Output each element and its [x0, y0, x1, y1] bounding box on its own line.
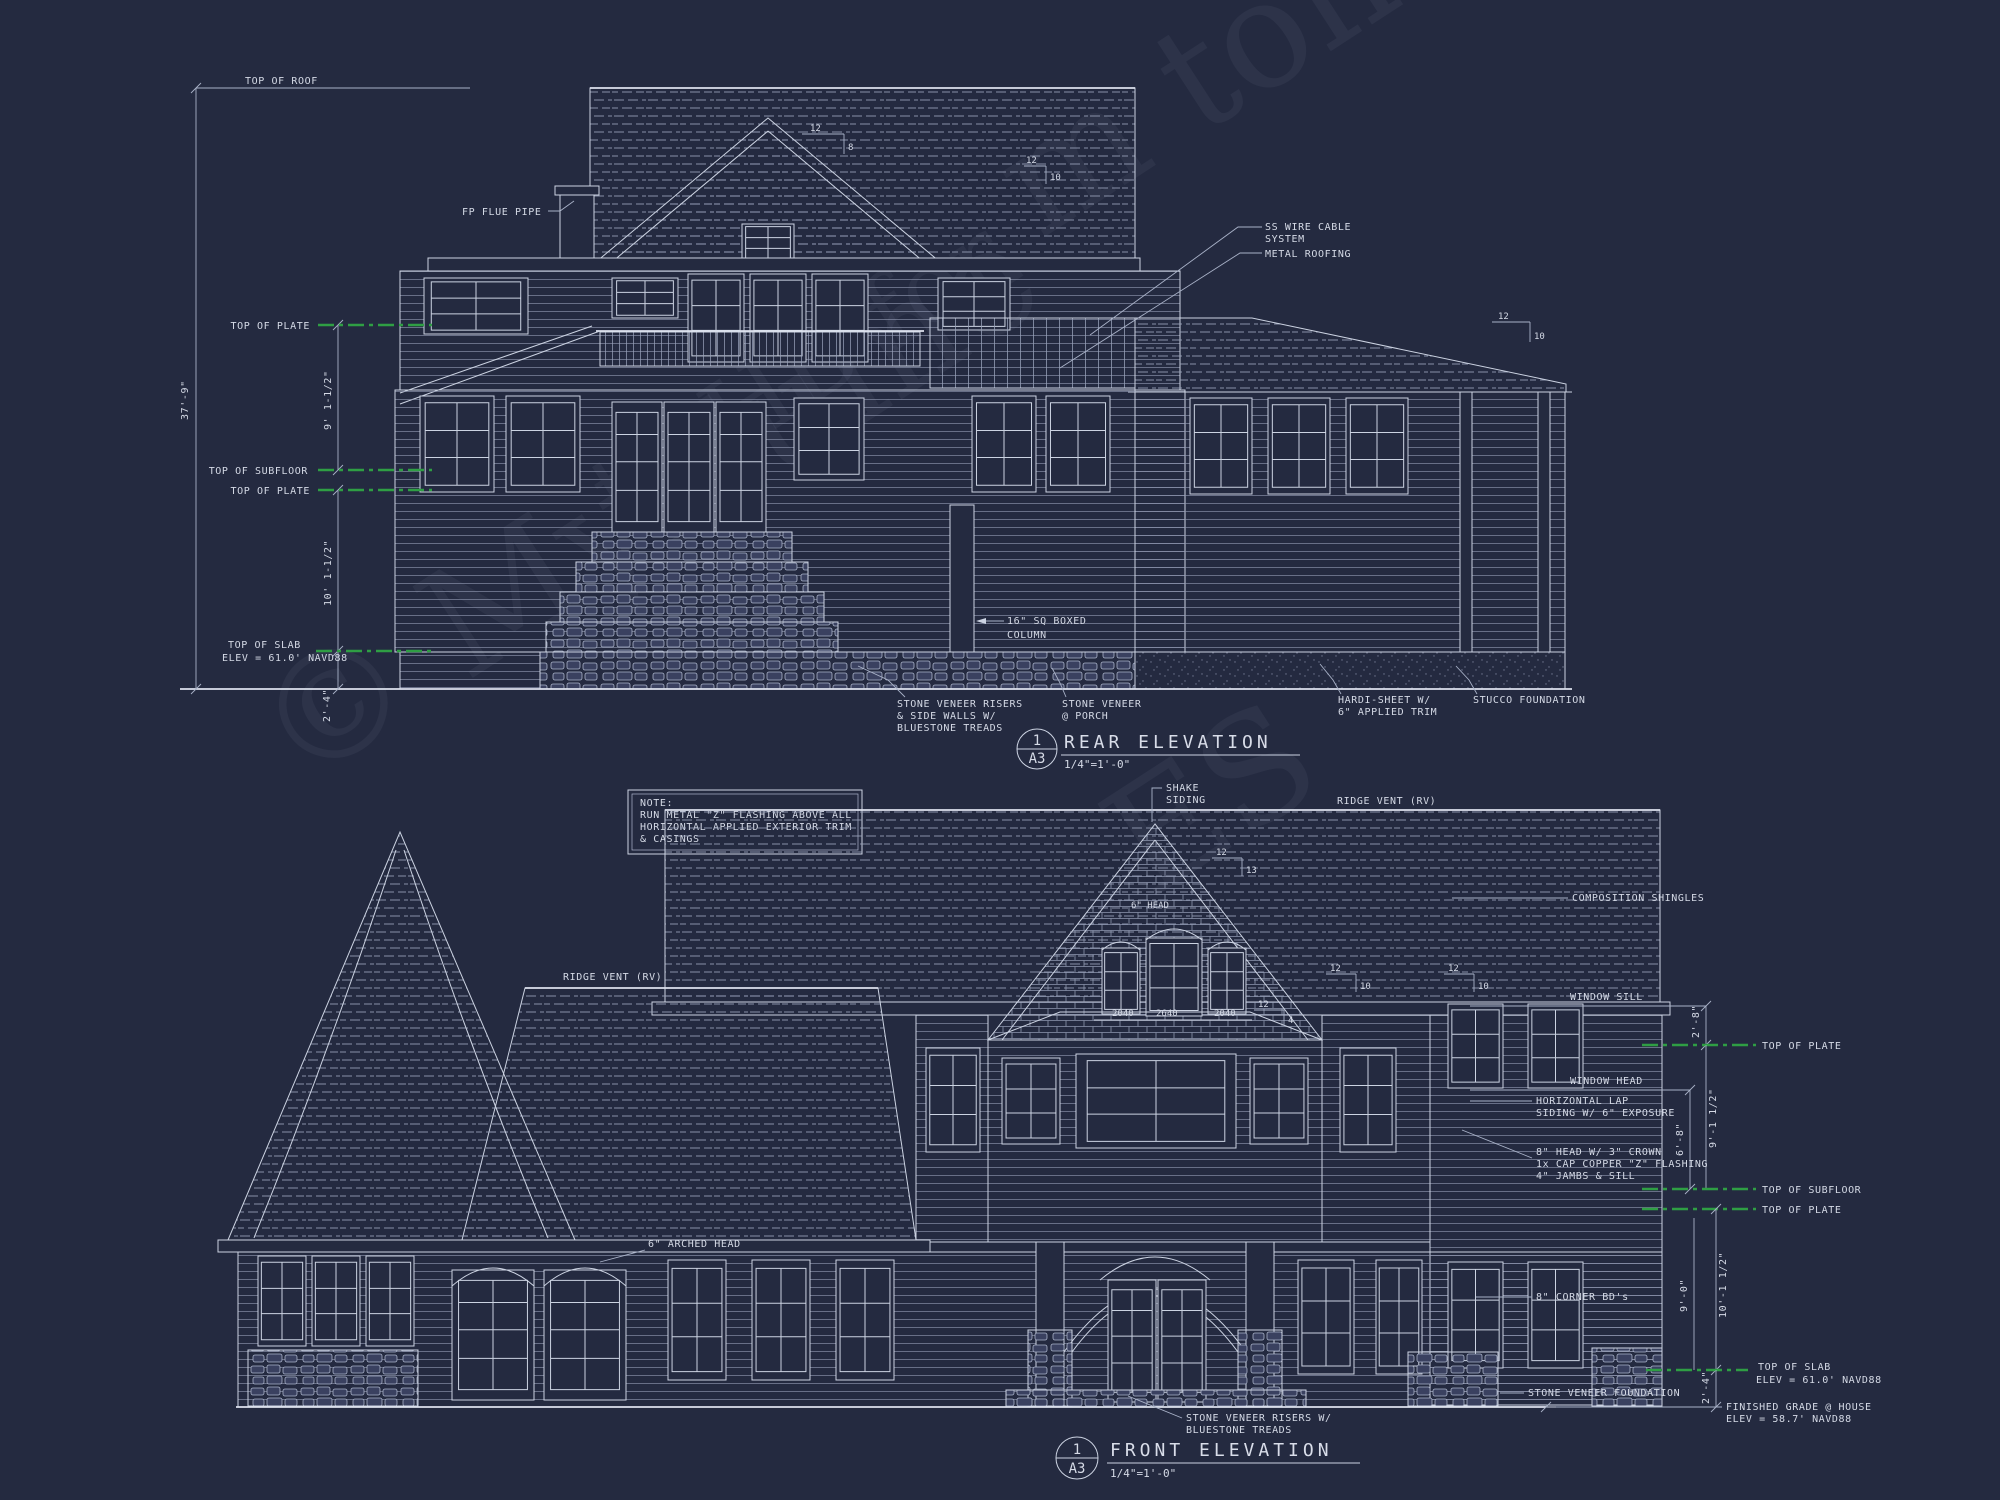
front-main-story-dim: 10'-1 1/2" [1718, 1252, 1729, 1318]
front-elevation-drawing [218, 810, 1670, 1412]
slope-rise: 12 [1258, 1000, 1269, 1010]
front-scale: 1/4"=1'-0" [1110, 1467, 1176, 1480]
slope-rise: 12 [1498, 312, 1509, 322]
front-grade-label2: ELEV = 58.7' NAVD88 [1726, 1414, 1852, 1425]
front-plate-upper-label: TOP OF PLATE [1762, 1041, 1841, 1052]
slope-run: 10 [1360, 982, 1371, 992]
rear-boxed-column-label: 16" SQ BOXED [1007, 616, 1086, 627]
rear-stone-porch-label: STONE VENEER [1062, 699, 1142, 710]
blueprint-sheet: © MyHume m ton to HB for ES [0, 0, 2000, 1500]
rear-stone-risers-label3: BLUESTONE TREADS [897, 723, 1003, 734]
rear-detail-number: 1 [1033, 733, 1041, 749]
slope-rise: 12 [1448, 964, 1459, 974]
slope-rise: 12 [1330, 964, 1341, 974]
rear-slab-elev-label: ELEV = 61.0' NAVD88 [222, 653, 348, 664]
rear-metal-roofing-label: METAL ROOFING [1265, 249, 1351, 260]
front-shake-label2: SIDING [1166, 795, 1206, 806]
front-trim-label2: 1x CAP COPPER "Z" FLASHING [1536, 1159, 1708, 1170]
front-subfloor-label: TOP OF SUBFLOOR [1762, 1185, 1862, 1196]
rear-overall-height-dim: 37'-9" [180, 380, 191, 420]
front-title-block: 1 A3 FRONT ELEVATION 1/4"=1'-0" [1056, 1437, 1360, 1480]
front-trim-label3: 4" JAMBS & SILL [1536, 1171, 1635, 1182]
slope-rise: 12 [810, 124, 821, 134]
front-ridge-vent-left-label: RIDGE VENT (RV) [563, 972, 662, 983]
rear-wing-windows [1190, 398, 1408, 494]
rear-slope-right: 12 10 [1492, 312, 1545, 342]
slope-run: 10 [1478, 982, 1489, 992]
rear-ss-wire-label: SS WIRE CABLE [1265, 222, 1351, 233]
front-shake-label: SHAKE [1166, 783, 1199, 794]
slope-run: 10 [1050, 173, 1061, 183]
front-trim-label: 8" HEAD W/ 3" CROWN [1536, 1147, 1662, 1158]
front-sill-dim: 2'-8" [1691, 1005, 1702, 1038]
front-window-sill-label: WINDOW SILL [1570, 992, 1643, 1003]
front-lap-label: HORIZONTAL LAP [1536, 1096, 1629, 1107]
front-slab-label: TOP OF SLAB [1758, 1362, 1831, 1373]
slope-run: 8 [848, 143, 853, 153]
rear-title: REAR ELEVATION [1064, 732, 1272, 753]
front-gable-head-label: 6" HEAD [1131, 901, 1169, 911]
rear-stone-risers-label2: & SIDE WALLS W/ [897, 711, 996, 722]
rear-sheet-number: A3 [1029, 751, 1046, 767]
front-detail-number: 1 [1073, 1442, 1081, 1458]
blueprint-canvas: © MyHume m ton to HB for ES [0, 0, 2000, 1500]
rear-plate-upper-label: TOP OF PLATE [231, 321, 310, 332]
front-plate-main-label: TOP OF PLATE [1762, 1205, 1841, 1216]
front-head-dim: 6'-8" [1675, 1123, 1686, 1156]
rear-stone-porch-label2: @ PORCH [1062, 711, 1108, 722]
front-title: FRONT ELEVATION [1110, 1440, 1333, 1461]
rear-boxed-column [950, 505, 974, 652]
rear-boxed-column-label2: COLUMN [1007, 630, 1047, 641]
rear-hardi-label2: 6" APPLIED TRIM [1338, 707, 1437, 718]
front-ceiling-dim: 9'-0" [1679, 1279, 1690, 1312]
front-arched-head-label: 6" ARCHED HEAD [648, 1239, 741, 1250]
front-window-size-2: 2640 [1156, 1009, 1178, 1019]
front-slab-elev-label: ELEV = 61.0' NAVD88 [1756, 1375, 1882, 1386]
rear-fp-flue-label: FP FLUE PIPE [462, 207, 541, 218]
front-risers-label: STONE VENEER RISERS W/ [1186, 1413, 1332, 1424]
slope-run: 10 [1534, 332, 1545, 342]
front-window-head-label: WINDOW HEAD [1570, 1076, 1643, 1087]
slope-rise: 12 [1216, 848, 1227, 858]
slope-run: 13 [1246, 866, 1257, 876]
rear-base-dim: 2'-4" [322, 689, 333, 722]
front-base-dim: 2'-4" [1701, 1371, 1712, 1404]
rear-stucco-label: STUCCO FOUNDATION [1473, 695, 1586, 706]
slope-rise: 12 [1026, 156, 1037, 166]
front-sheet-number: A3 [1069, 1461, 1086, 1477]
front-upper-story-dim: 9'-1 1/2" [1708, 1088, 1719, 1148]
front-risers-label2: BLUESTONE TREADS [1186, 1425, 1292, 1436]
rear-ss-wire-label2: SYSTEM [1265, 234, 1305, 245]
rear-upper-story-dim: 9' 1-1/2" [323, 370, 334, 430]
front-window-size-1: 2040 [1112, 1009, 1134, 1019]
front-grade-label: FINISHED GRADE @ HOUSE [1726, 1402, 1872, 1413]
rear-subfloor-label: TOP OF SUBFLOOR [209, 466, 309, 477]
front-lap-label2: SIDING W/ 6" EXPOSURE [1536, 1108, 1675, 1119]
front-comp-shingles-label: COMPOSITION SHINGLES [1572, 893, 1704, 904]
rear-stone-risers-label: STONE VENEER RISERS [897, 699, 1023, 710]
rear-hardi-label: HARDI-SHEET W/ [1338, 695, 1431, 706]
rear-main-story-dim: 10' 1-1/2" [323, 540, 334, 606]
note-line1: NOTE: [640, 798, 673, 809]
slope-run: 4 [1288, 1016, 1293, 1026]
front-window-size-3: 2040 [1214, 1009, 1236, 1019]
rear-top-of-roof-label: TOP OF ROOF [245, 76, 318, 87]
rear-plate-main-label: TOP OF PLATE [231, 486, 310, 497]
rear-scale: 1/4"=1'-0" [1064, 758, 1130, 771]
rear-slab-label: TOP OF SLAB [228, 640, 301, 651]
front-stone-foundation-label: STONE VENEER FOUNDATION [1528, 1388, 1680, 1399]
front-ridge-vent-right-label: RIDGE VENT (RV) [1337, 796, 1436, 807]
front-corner-bds-label: 8" CORNER BD's [1536, 1292, 1629, 1303]
